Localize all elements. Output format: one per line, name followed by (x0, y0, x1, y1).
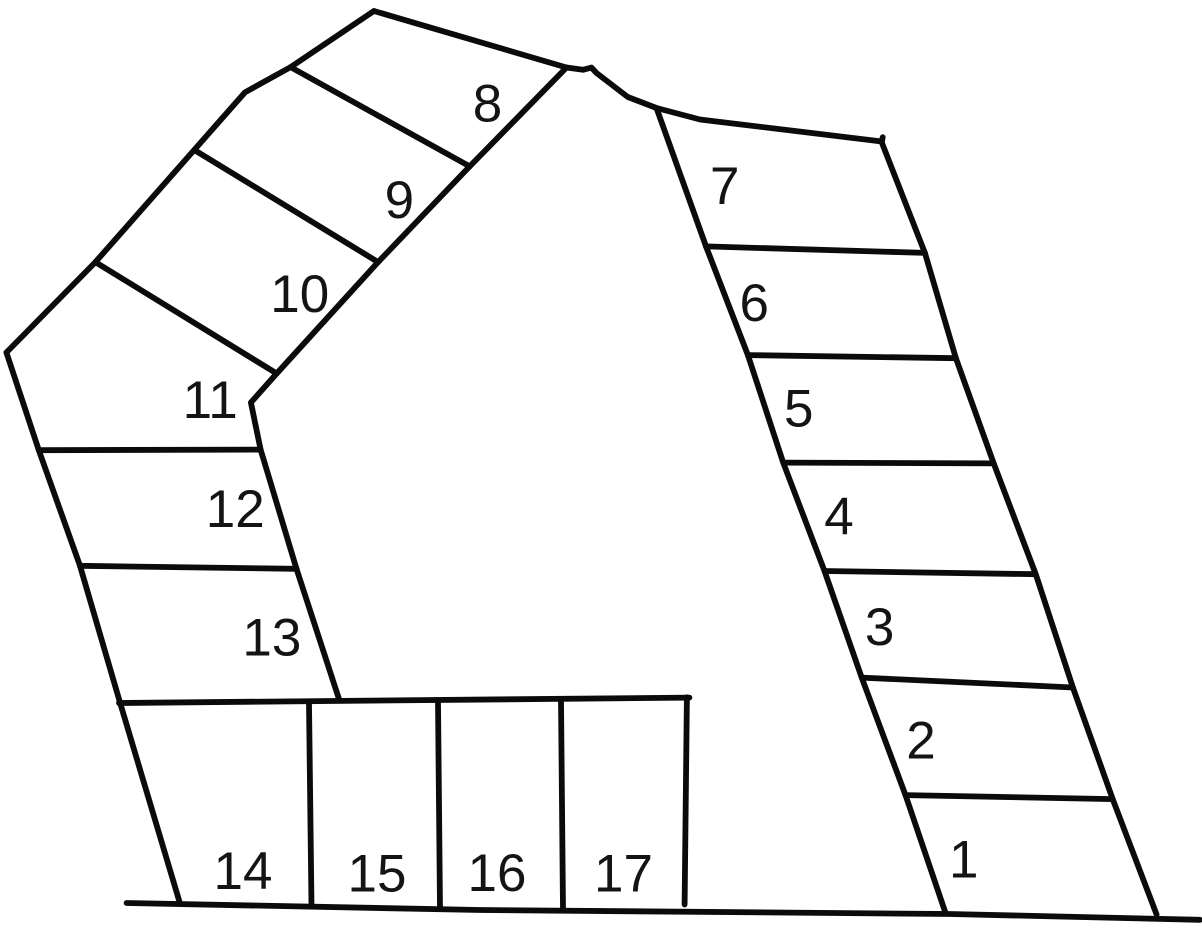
svg-text:12: 12 (206, 480, 265, 539)
svg-text:11: 11 (183, 371, 238, 430)
svg-text:17: 17 (594, 845, 653, 904)
svg-text:6: 6 (740, 274, 769, 333)
svg-text:10: 10 (270, 265, 329, 324)
svg-text:14: 14 (214, 842, 273, 901)
svg-text:2: 2 (906, 712, 935, 771)
svg-text:1: 1 (949, 831, 978, 890)
svg-text:16: 16 (468, 844, 527, 903)
svg-text:15: 15 (348, 845, 407, 904)
svg-text:5: 5 (784, 380, 813, 439)
svg-text:9: 9 (385, 171, 414, 230)
svg-text:3: 3 (865, 598, 894, 657)
svg-text:4: 4 (824, 488, 853, 547)
svg-text:7: 7 (710, 157, 739, 216)
svg-text:13: 13 (242, 608, 301, 667)
svg-text:8: 8 (473, 75, 502, 134)
